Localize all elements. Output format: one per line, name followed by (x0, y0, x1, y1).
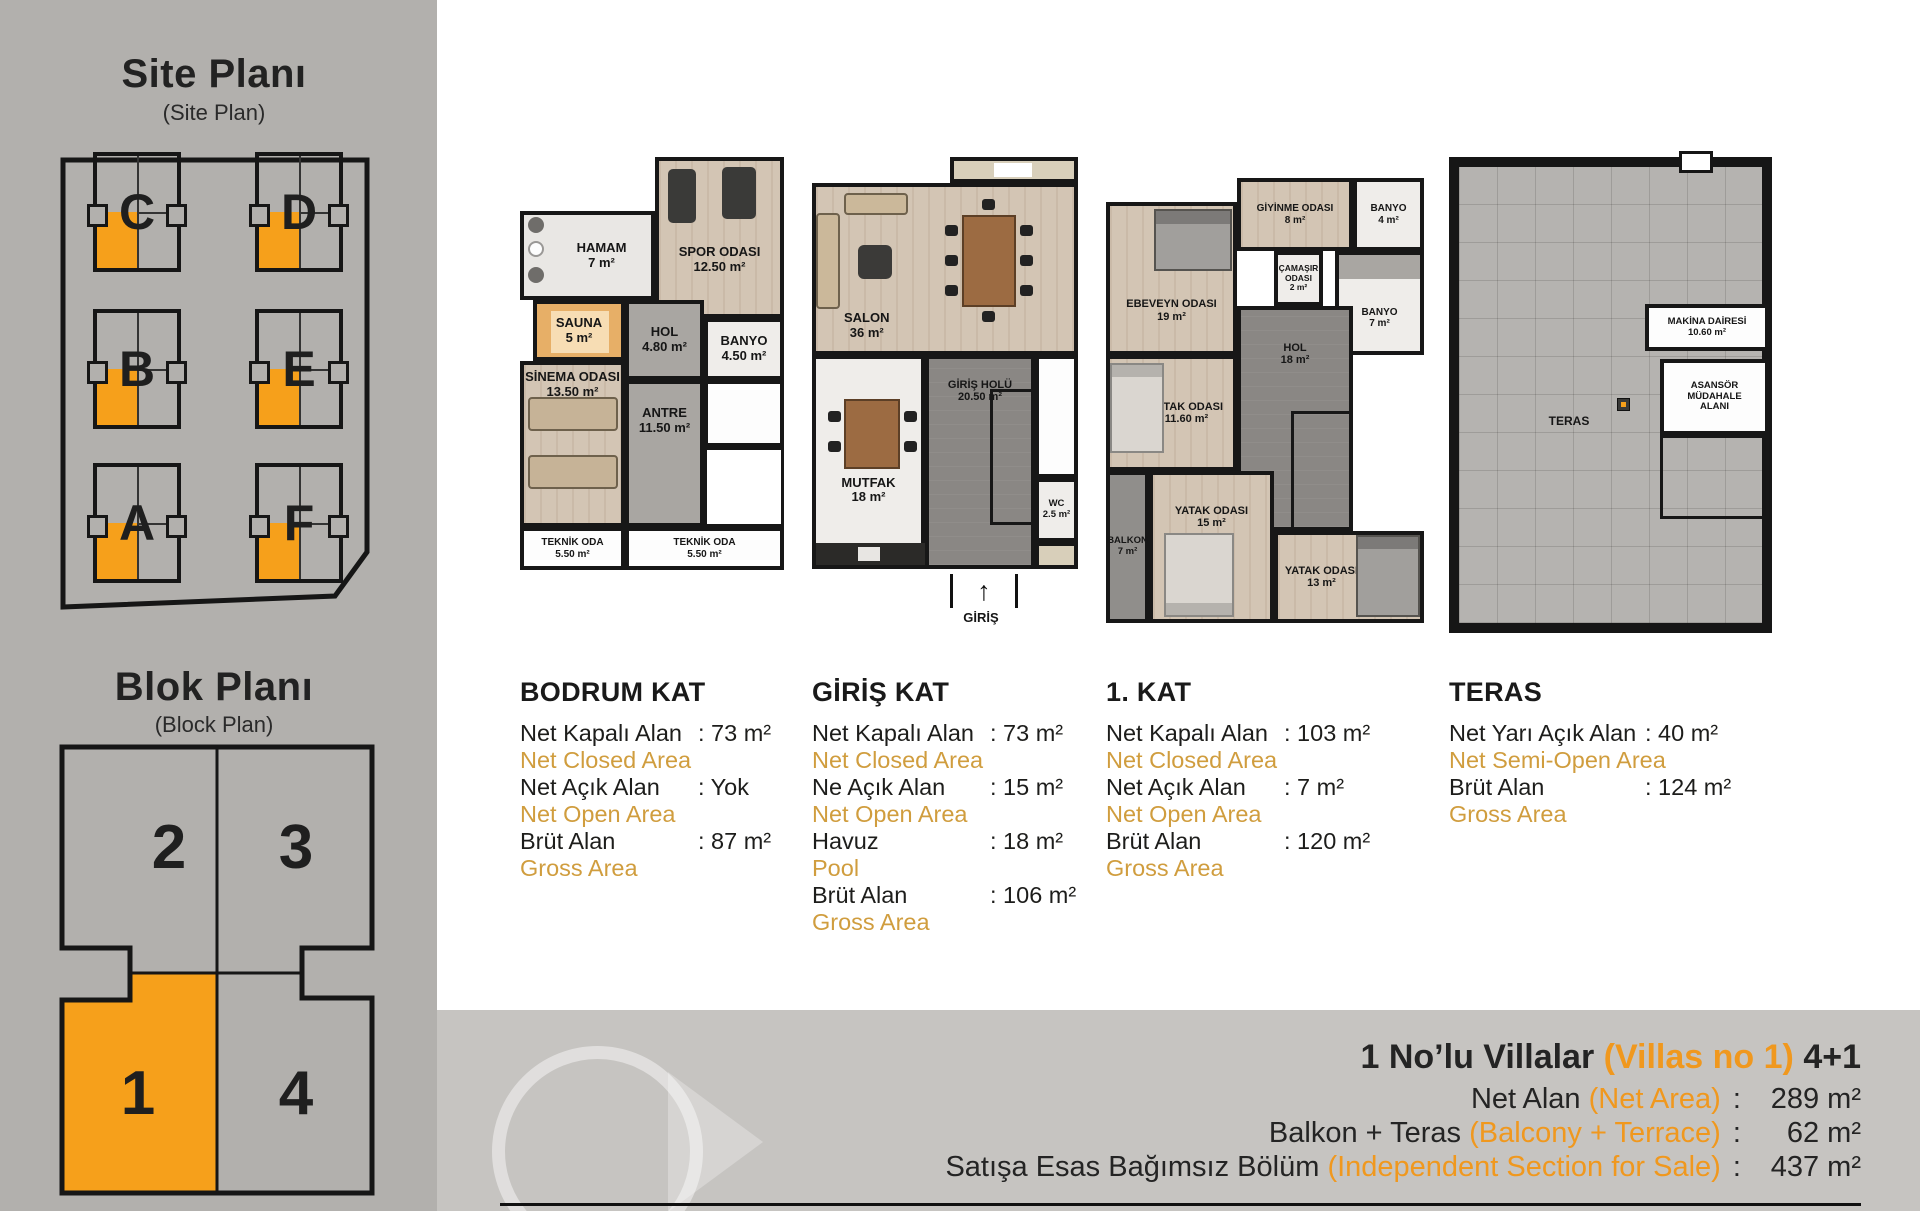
coffee-table-icon (858, 245, 892, 279)
room-banyo-ust: BANYO4 m² (1353, 178, 1424, 251)
entrance-arrow-icon: ↑ (950, 574, 1018, 608)
room-hol: HOL4.80 m² (625, 300, 704, 380)
block-plan-unit-2: 2 (119, 812, 219, 883)
room-banyo: BANYO4.50 m² (704, 318, 784, 380)
site-block-D: D (255, 152, 343, 272)
floor-title: TERAS (1449, 677, 1769, 708)
bed-icon (1356, 535, 1420, 617)
terrace-sill (950, 157, 1078, 183)
site-block-A: A (93, 463, 181, 583)
summary-bagimsiz-bolum-value: 437 m² (1753, 1151, 1861, 1184)
summary-net-alan: Net Alan (Net Area) : 289 m² (1471, 1083, 1861, 1116)
site-block-B: B (93, 309, 181, 429)
room-antre: ANTRE11.50 m² (625, 380, 704, 527)
stats-teras: TERAS Net Yarı Açık Alan: 40 m² Net Semi… (1449, 677, 1769, 828)
stats-1-kat: 1. KAT Net Kapalı Alan: 103 m² Net Close… (1106, 677, 1396, 882)
bed-icon (1154, 209, 1232, 271)
stairs (1291, 411, 1353, 531)
summary-title-en: (Villas no 1) (1604, 1038, 1794, 1076)
room-sinema-odasi: SİNEMA ODASI13.50 m² (520, 361, 625, 527)
summary-title: 1 No’lu Villalar (Villas no 1) 4+1 (1361, 1038, 1862, 1077)
roof-hatch-icon (1617, 398, 1630, 411)
footer-rule (500, 1203, 1861, 1206)
dining-table-icon (962, 215, 1016, 307)
floorplan-bodrum-kat: SPOR ODASI12.50 m² HAMAM7 m² SAUNA5 m² H… (520, 157, 784, 570)
logo-watermark-triangle (668, 1072, 763, 1211)
bay-window (1035, 355, 1078, 478)
block-letter: A (97, 467, 177, 579)
floorplan-teras: MAKİNA DAİRESİ10.60 m² ASANSÖR MÜDAHALE … (1449, 157, 1772, 633)
room-sauna: SAUNA5 m² (533, 300, 625, 361)
room-giyinme-odasi: GİYİNME ODASI8 m² (1237, 178, 1353, 251)
sofa-icon (816, 213, 840, 309)
room-asansor-mudahale-alani: ASANSÖR MÜDAHALE ALANI (1660, 359, 1769, 435)
kitchen-table-icon (844, 399, 900, 469)
bed-icon (1164, 533, 1234, 617)
bed-icon (1110, 363, 1164, 453)
sofa-icon (844, 193, 908, 215)
block-letter: F (259, 467, 339, 579)
room-balkon: BALKON7 m² (1106, 471, 1149, 623)
stairs (1660, 435, 1769, 519)
block-letter: C (97, 156, 177, 268)
summary-balkon-teras: Balkon + Teras (Balcony + Terrace) : 62 … (1269, 1117, 1861, 1150)
room-wc: WC2.5 m² (1035, 478, 1078, 542)
sofa-icon (528, 455, 618, 489)
block-plan-title: Blok Planı (64, 665, 364, 710)
summary-net-alan-value: 289 m² (1753, 1083, 1861, 1116)
sofa-icon (528, 397, 618, 431)
teras-label: TERAS (1519, 415, 1619, 428)
treadmill-icon (668, 169, 696, 223)
hamam-stone-icon (528, 217, 544, 233)
block-plan-subtitle: (Block Plan) (64, 712, 364, 738)
entrance-label: GİRİŞ (935, 610, 1027, 625)
block-plan-unit-4: 4 (246, 1058, 346, 1129)
chimney (1679, 151, 1713, 173)
room-camasir-odasi: ÇAMAŞIR ODASI2 m² (1274, 251, 1323, 306)
block-plan-unit-3: 3 (246, 812, 346, 883)
floorplan-1-kat: EBEVEYN ODASI19 m² GİYİNME ODASI8 m² BAN… (1106, 171, 1424, 629)
room-teknik-oda-1: TEKNİK ODA5.50 m² (520, 527, 625, 570)
hamam-basin-icon (528, 241, 544, 257)
block-letter: E (259, 313, 339, 425)
rear-step (1035, 542, 1078, 569)
room-teknik-oda-2: TEKNİK ODA5.50 m² (625, 527, 784, 570)
floorplan-giris-kat: SALON36 m² GİRİŞ HOLÜ20.50 m² MUTFAK18 m… (812, 157, 1078, 572)
site-block-E: E (255, 309, 343, 429)
floor-title: 1. KAT (1106, 677, 1396, 708)
stairs (704, 447, 784, 527)
gym-equipment-icon (722, 167, 756, 219)
summary-balkon-teras-value: 62 m² (1753, 1117, 1861, 1150)
floor-title: BODRUM KAT (520, 677, 810, 708)
room-makina-dairesi: MAKİNA DAİRESİ10.60 m² (1645, 304, 1769, 351)
site-plan-subtitle: (Site Plan) (64, 100, 364, 126)
brochure-page: Site Planı (Site Plan) C D B E (0, 0, 1920, 1211)
site-block-F: F (255, 463, 343, 583)
summary-bagimsiz-bolum: Satışa Esas Bağımsız Bölüm (Independent … (945, 1151, 1861, 1184)
stats-bodrum-kat: BODRUM KAT Net Kapalı Alan: 73 m² Net Cl… (520, 677, 810, 882)
hamam-stone-icon (528, 267, 544, 283)
site-block-C: C (93, 152, 181, 272)
block-plan-unit-1: 1 (88, 1058, 188, 1129)
stats-giris-kat: GİRİŞ KAT Net Kapalı Alan: 73 m² Net Clo… (812, 677, 1102, 936)
floor-title: GİRİŞ KAT (812, 677, 1102, 708)
block-letter: B (97, 313, 177, 425)
sidebar: Site Planı (Site Plan) C D B E (0, 0, 437, 1211)
elevator-shaft (704, 380, 784, 447)
site-plan-title: Site Planı (64, 52, 364, 97)
block-letter: D (259, 156, 339, 268)
block-plan-outline (55, 740, 385, 1200)
kitchen-counter-icon (816, 543, 925, 565)
stairs (990, 389, 1035, 525)
